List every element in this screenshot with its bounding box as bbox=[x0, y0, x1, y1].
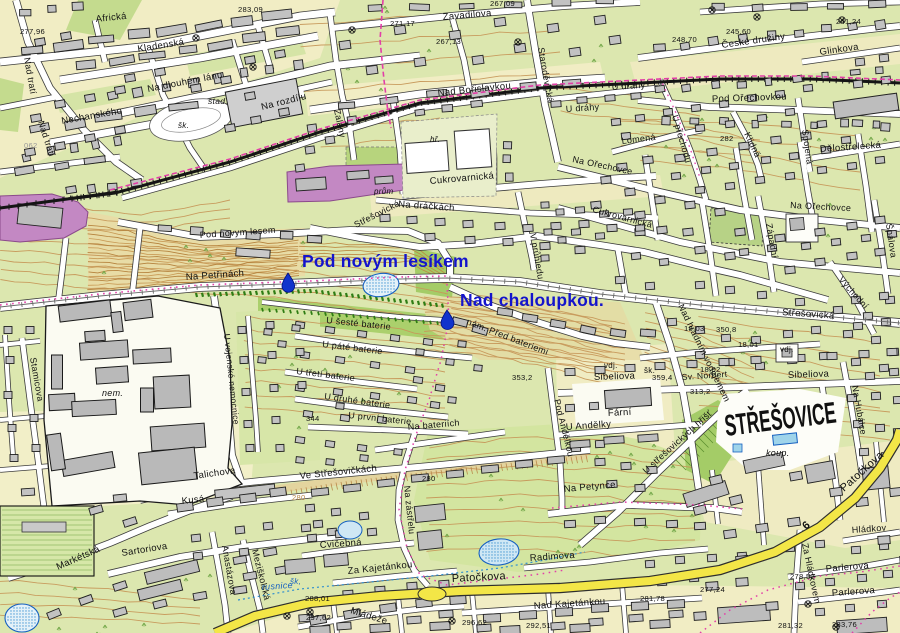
svg-text:Pod novým lesíkem: Pod novým lesíkem bbox=[302, 251, 469, 271]
svg-text:283,76: 283,76 bbox=[832, 620, 857, 629]
svg-text:271,17: 271,17 bbox=[390, 19, 415, 28]
svg-text:koup.: koup. bbox=[766, 448, 790, 458]
svg-text:267,13: 267,13 bbox=[436, 37, 461, 46]
svg-text:313,2: 313,2 bbox=[690, 387, 711, 396]
svg-text:vdj.: vdj. bbox=[604, 361, 618, 370]
svg-text:283,09: 283,09 bbox=[238, 5, 263, 14]
svg-text:288,01: 288,01 bbox=[305, 594, 330, 603]
svg-text:stad.: stad. bbox=[208, 96, 228, 106]
svg-text:šk,: šk, bbox=[290, 577, 301, 586]
svg-text:267,09: 267,09 bbox=[490, 0, 515, 8]
svg-text:344: 344 bbox=[306, 414, 320, 423]
svg-text:Sibeliova: Sibeliova bbox=[788, 369, 830, 381]
svg-text:297,62: 297,62 bbox=[306, 613, 331, 622]
svg-text:vdj.: vdj. bbox=[780, 345, 794, 354]
svg-text:353,2: 353,2 bbox=[512, 373, 533, 382]
svg-text:296,62: 296,62 bbox=[462, 618, 487, 627]
svg-text:359,4: 359,4 bbox=[652, 373, 673, 382]
svg-text:277,96: 277,96 bbox=[20, 27, 45, 36]
svg-text:278,52: 278,52 bbox=[790, 572, 815, 581]
svg-text:248,70: 248,70 bbox=[672, 35, 697, 44]
svg-text:245,60: 245,60 bbox=[726, 27, 751, 36]
svg-text:241,24: 241,24 bbox=[836, 17, 861, 26]
svg-text:prům: prům bbox=[373, 187, 393, 196]
svg-text:Sibeliova: Sibeliova bbox=[594, 371, 636, 383]
svg-text:Nad chaloupkou.: Nad chaloupkou. bbox=[460, 290, 604, 310]
svg-text:292,51: 292,51 bbox=[526, 621, 551, 630]
svg-text:062: 062 bbox=[24, 141, 38, 150]
svg-text:hř.: hř. bbox=[430, 135, 440, 144]
svg-text:350,8: 350,8 bbox=[716, 325, 737, 334]
svg-text:nem.: nem. bbox=[102, 388, 123, 398]
svg-text:18,01: 18,01 bbox=[738, 340, 759, 349]
svg-text:282: 282 bbox=[720, 134, 734, 143]
svg-text:šk.: šk. bbox=[178, 121, 189, 130]
svg-text:18,03: 18,03 bbox=[684, 324, 705, 333]
svg-text:Fární: Fární bbox=[608, 407, 632, 419]
svg-text:280: 280 bbox=[422, 474, 436, 483]
svg-text:281,32: 281,32 bbox=[778, 621, 803, 630]
svg-text:18,02: 18,02 bbox=[700, 365, 721, 374]
svg-text:280: 280 bbox=[292, 493, 306, 502]
svg-text:277,24: 277,24 bbox=[700, 585, 725, 594]
svg-text:281,78: 281,78 bbox=[640, 594, 665, 603]
